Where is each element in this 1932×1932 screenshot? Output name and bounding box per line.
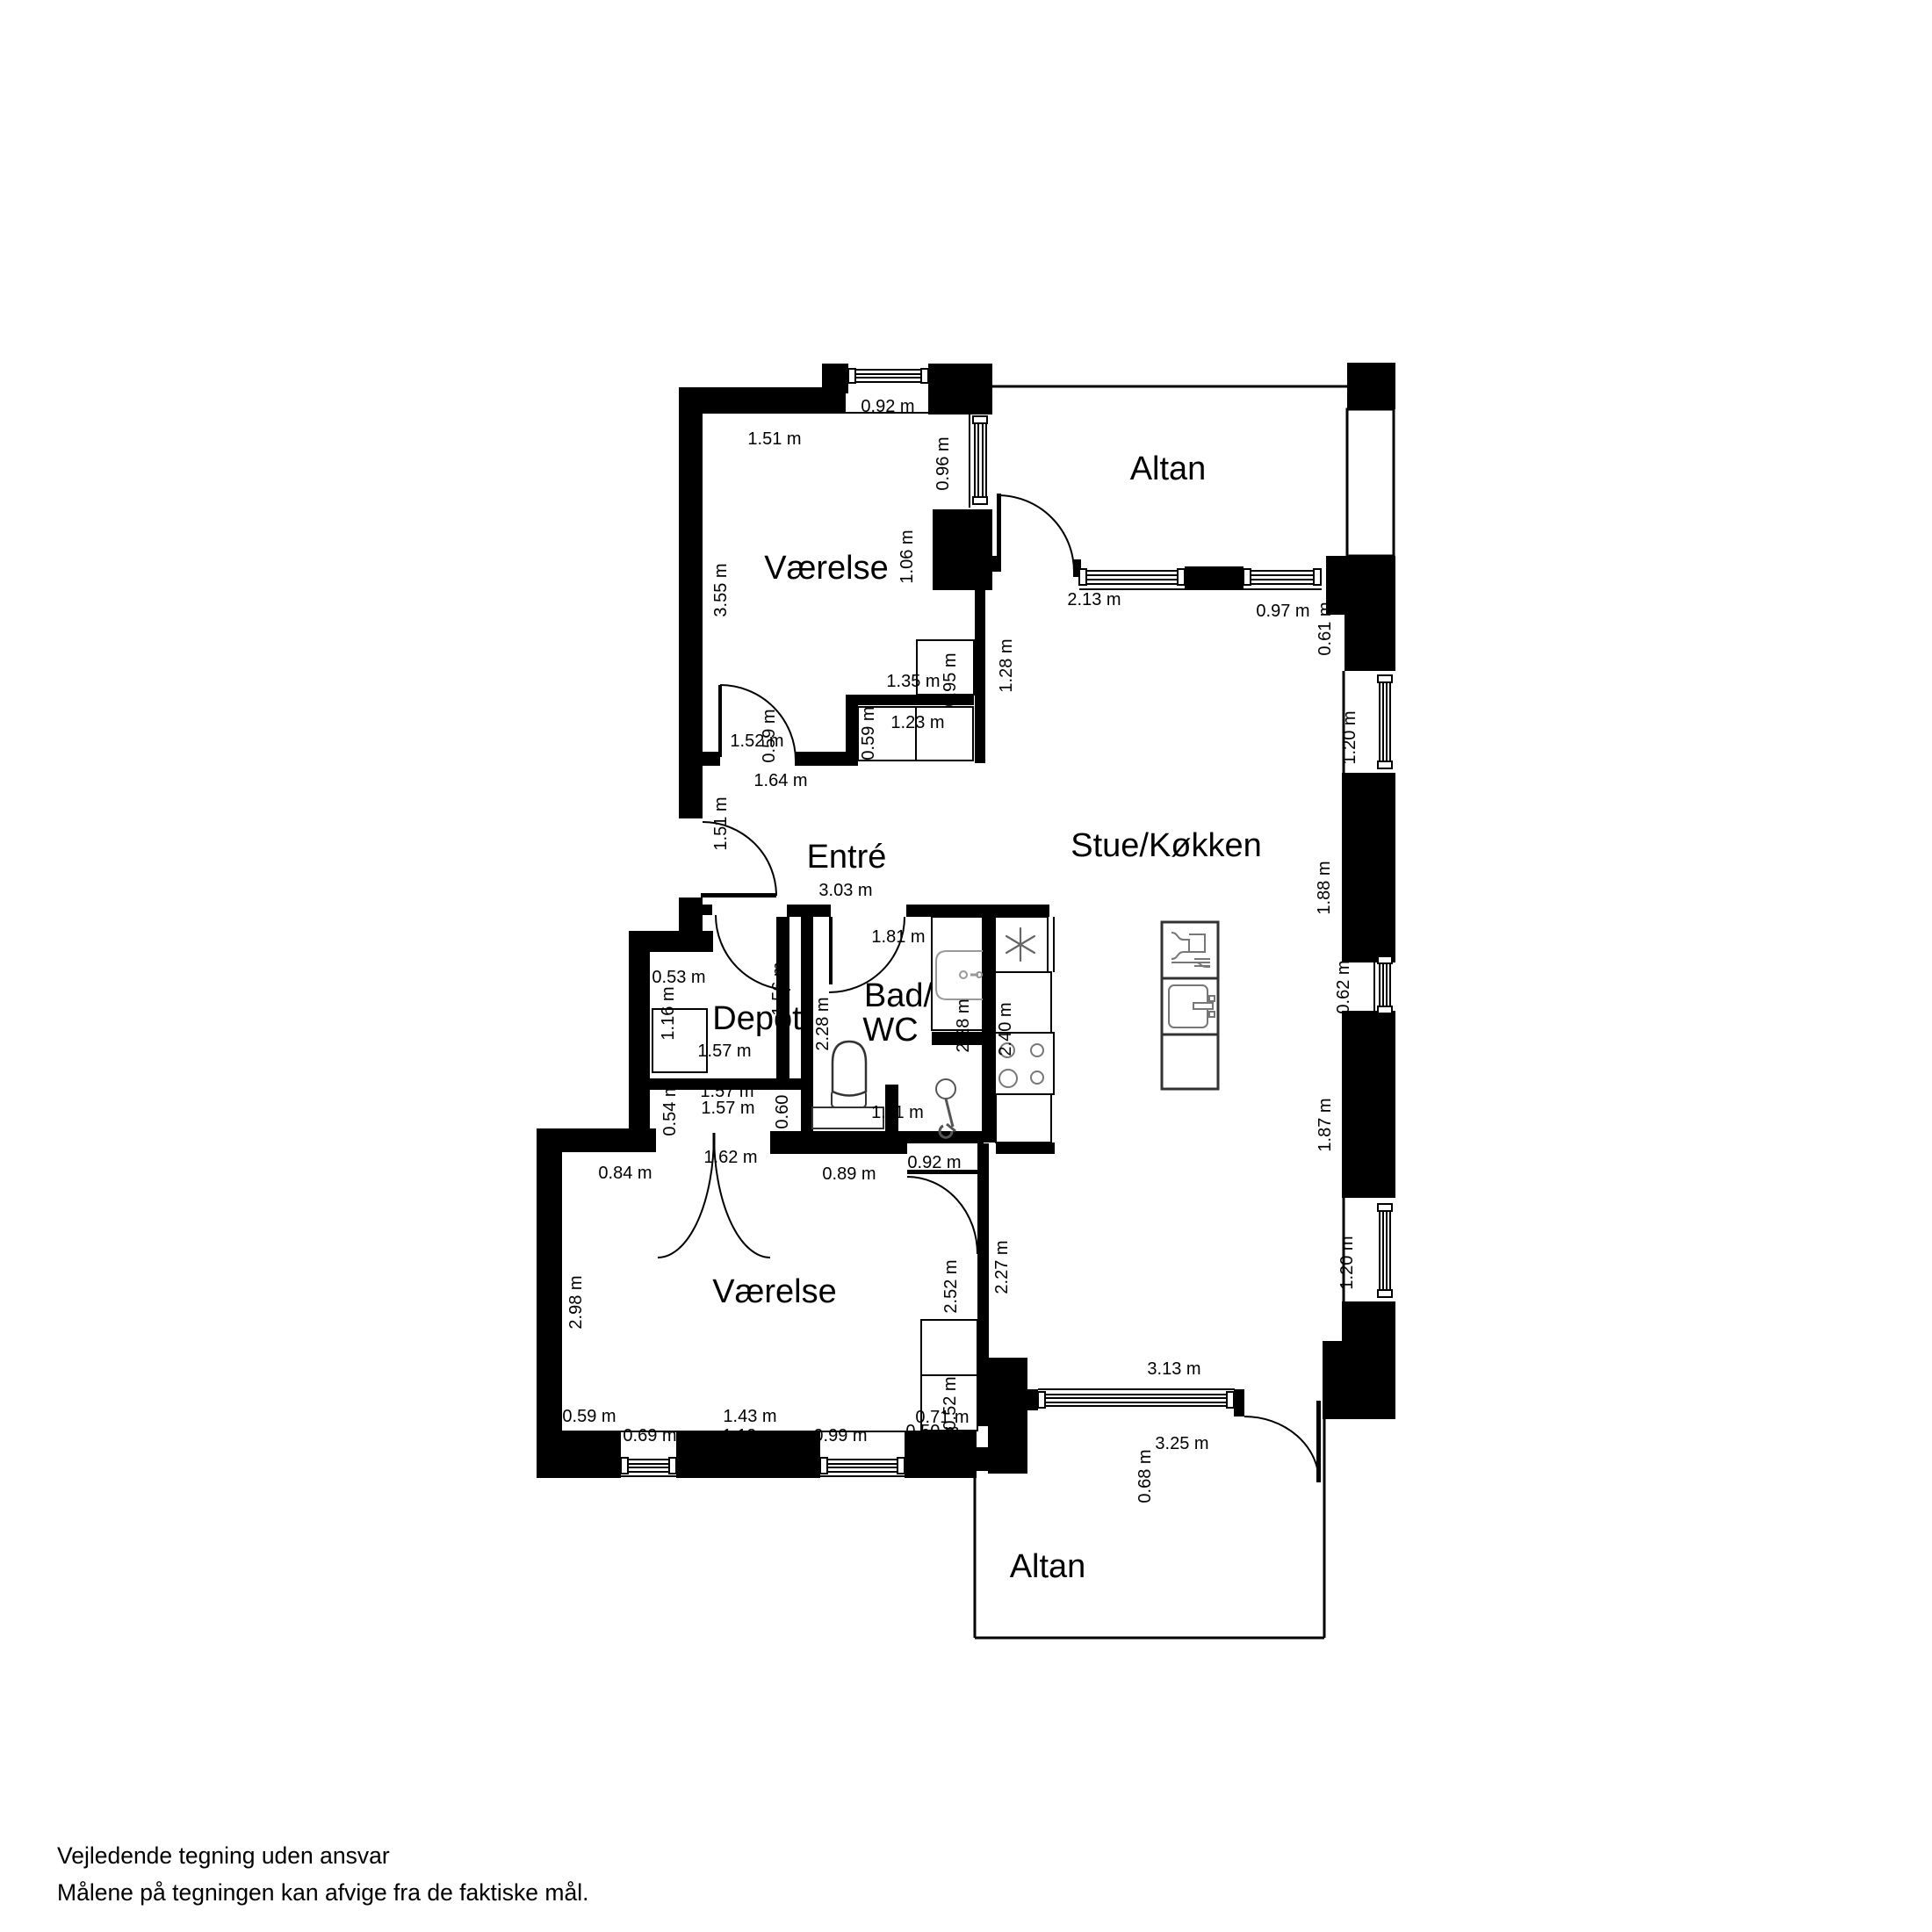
svg-text:1.87 m: 1.87 m <box>1316 1098 1335 1151</box>
svg-text:0.68 m: 0.68 m <box>1135 1449 1155 1503</box>
svg-text:3.03 m: 3.03 m <box>818 881 872 900</box>
svg-text:0.92 m: 0.92 m <box>907 1153 961 1172</box>
svg-text:1.20 m: 1.20 m <box>1337 1236 1357 1289</box>
svg-text:0.59 m: 0.59 m <box>760 709 779 762</box>
svg-text:1.35 m: 1.35 m <box>886 672 940 691</box>
svg-text:Altan: Altan <box>1010 1548 1086 1585</box>
svg-text:Entré: Entré <box>807 839 887 876</box>
svg-text:0.53 m: 0.53 m <box>652 968 705 987</box>
svg-text:1.43 m: 1.43 m <box>723 1407 776 1426</box>
svg-text:Stue/Køkken: Stue/Køkken <box>1071 827 1262 864</box>
svg-text:0.92 m: 0.92 m <box>861 397 914 416</box>
svg-text:1.23 m: 1.23 m <box>890 713 944 732</box>
svg-text:0.59 m: 0.59 m <box>562 1407 616 1426</box>
svg-text:3.13 m: 3.13 m <box>1147 1359 1200 1379</box>
svg-text:0.96 m: 0.96 m <box>934 436 953 490</box>
svg-text:0.69 m: 0.69 m <box>623 1426 676 1445</box>
svg-text:0.99 m: 0.99 m <box>813 1426 867 1445</box>
svg-text:1.64 m: 1.64 m <box>753 771 807 790</box>
svg-text:1.06 m: 1.06 m <box>898 530 917 583</box>
svg-text:1.57 m: 1.57 m <box>697 1042 751 1061</box>
svg-text:2.28 m: 2.28 m <box>954 998 973 1052</box>
svg-text:Bad/: Bad/ <box>864 977 934 1014</box>
svg-text:2.40 m: 2.40 m <box>996 1002 1015 1056</box>
svg-text:1.51 m: 1.51 m <box>747 429 801 449</box>
svg-text:1.88 m: 1.88 m <box>1315 861 1334 914</box>
svg-text:Altan: Altan <box>1130 451 1207 487</box>
svg-text:2.13 m: 2.13 m <box>1067 590 1121 609</box>
svg-text:3.55 m: 3.55 m <box>711 563 731 616</box>
svg-text:Værelse: Værelse <box>764 550 889 587</box>
svg-text:Målene på tegningen kan afvige: Målene på tegningen kan afvige fra de fa… <box>57 1879 588 1906</box>
svg-text:0.50 m: 0.50 m <box>905 1422 959 1441</box>
svg-text:WC: WC <box>862 1012 918 1049</box>
svg-text:2.52 m: 2.52 m <box>941 1259 961 1313</box>
svg-text:0.54 m: 0.54 m <box>660 1082 680 1135</box>
svg-text:0.62 m: 0.62 m <box>1334 960 1353 1013</box>
svg-text:1.16 m: 1.16 m <box>659 986 678 1040</box>
svg-text:0.89 m: 0.89 m <box>822 1164 876 1184</box>
svg-text:0.60 m: 0.60 m <box>773 1075 792 1128</box>
svg-text:1.11 m: 1.11 m <box>871 1103 924 1122</box>
svg-text:1.20 m: 1.20 m <box>1340 710 1359 764</box>
svg-text:0.97 m: 0.97 m <box>1256 602 1309 621</box>
svg-text:1.81 m: 1.81 m <box>871 927 925 947</box>
svg-text:2.98 m: 2.98 m <box>566 1275 586 1329</box>
svg-text:1.62 m: 1.62 m <box>703 1148 757 1167</box>
svg-text:0.59 m: 0.59 m <box>859 706 878 760</box>
svg-text:0.95 m: 0.95 m <box>941 652 960 706</box>
svg-text:3.25 m: 3.25 m <box>1155 1434 1208 1453</box>
svg-text:2.27 m: 2.27 m <box>992 1240 1012 1294</box>
svg-text:0.84 m: 0.84 m <box>598 1164 652 1183</box>
svg-text:Vejledende tegning uden ansvar: Vejledende tegning uden ansvar <box>57 1842 390 1869</box>
svg-text:1.28 m: 1.28 m <box>997 638 1016 692</box>
svg-text:0.61 m: 0.61 m <box>1316 602 1335 655</box>
svg-text:1.56 m: 1.56 m <box>769 962 789 1015</box>
svg-text:1.57 m: 1.57 m <box>701 1099 754 1118</box>
svg-text:2.28 m: 2.28 m <box>813 997 833 1050</box>
svg-text:1.51 m: 1.51 m <box>711 797 731 850</box>
svg-text:Værelse: Værelse <box>712 1273 837 1310</box>
